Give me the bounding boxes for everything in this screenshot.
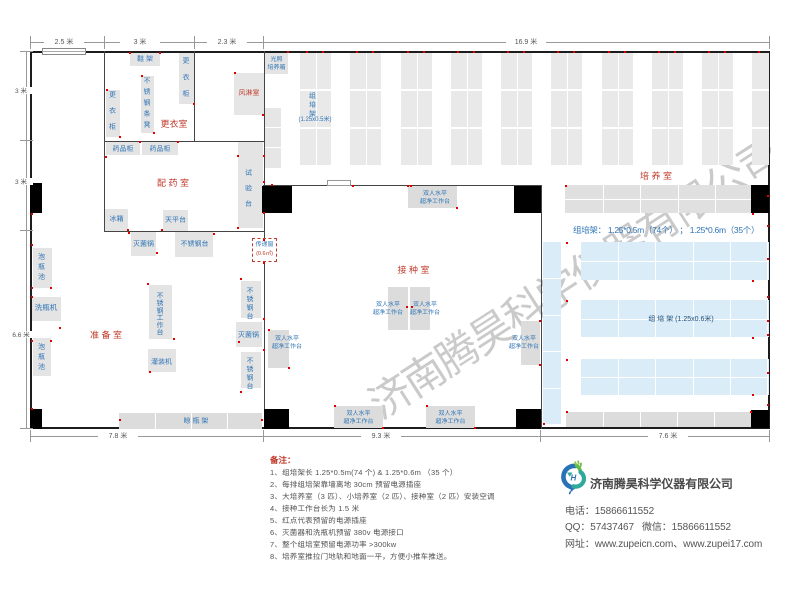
svg-text:H: H [571,473,577,484]
